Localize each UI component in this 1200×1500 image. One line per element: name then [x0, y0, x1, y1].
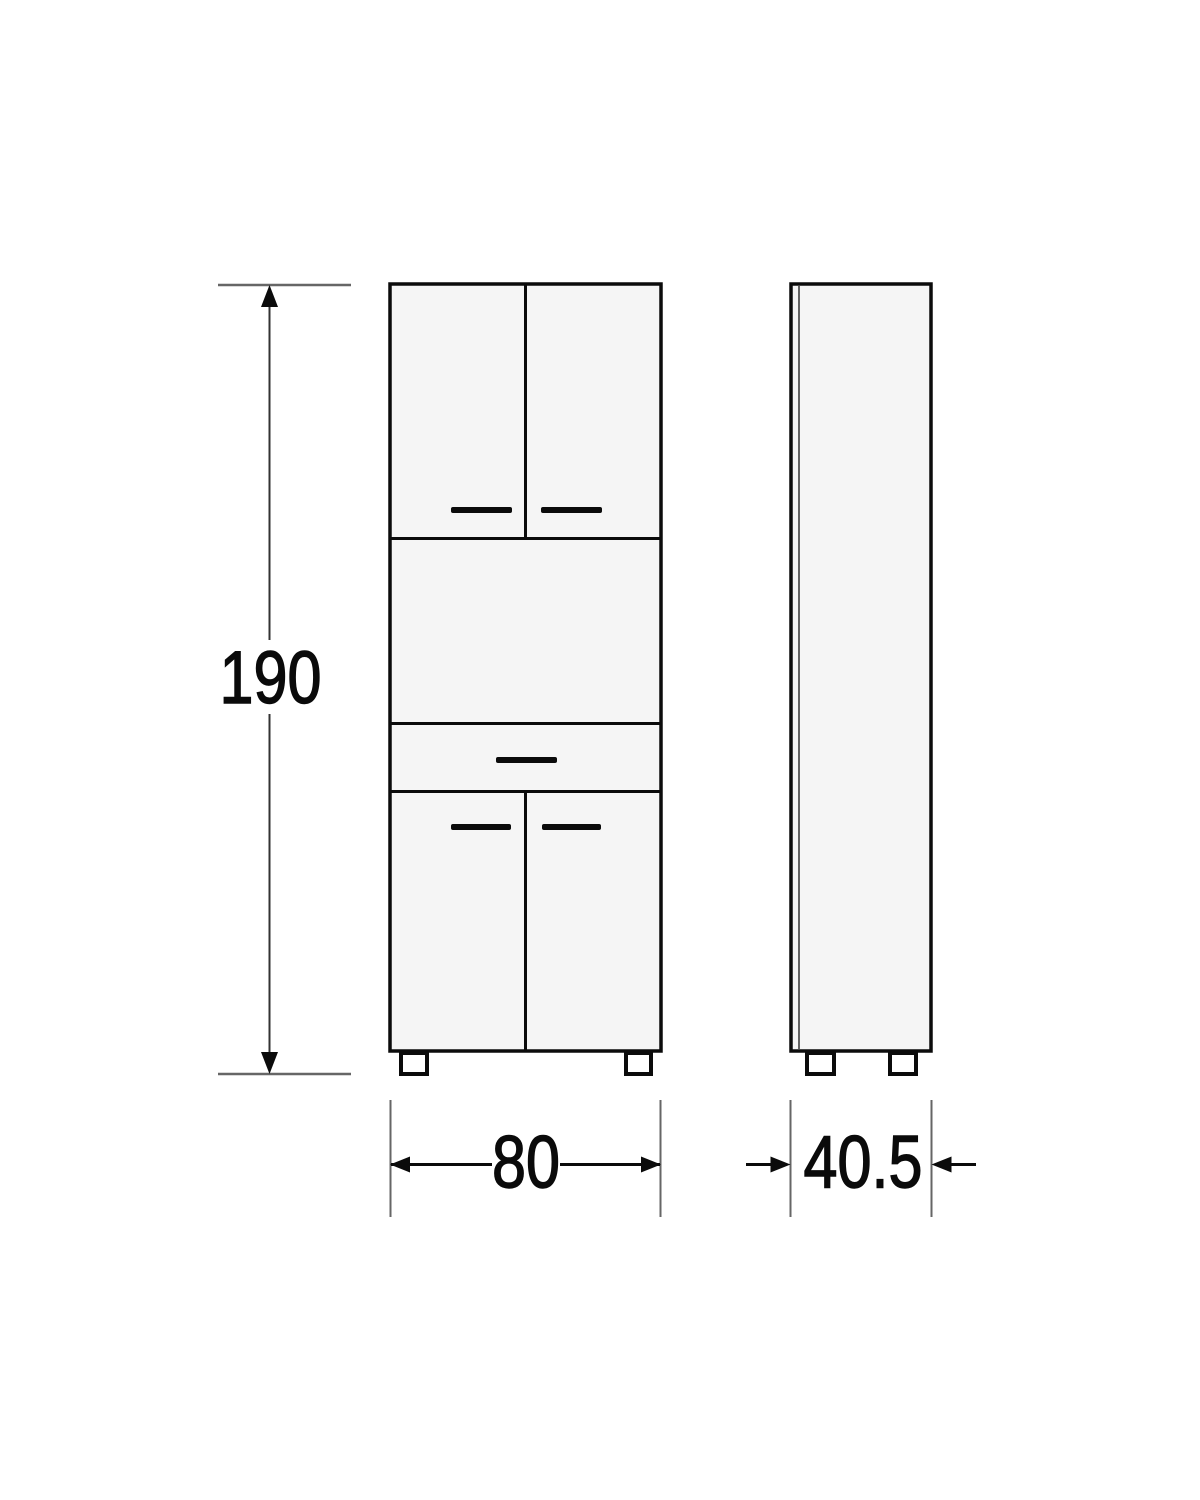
svg-text:80: 80: [492, 1122, 560, 1204]
svg-text:40.5: 40.5: [804, 1122, 923, 1204]
svg-text:190: 190: [220, 638, 322, 720]
